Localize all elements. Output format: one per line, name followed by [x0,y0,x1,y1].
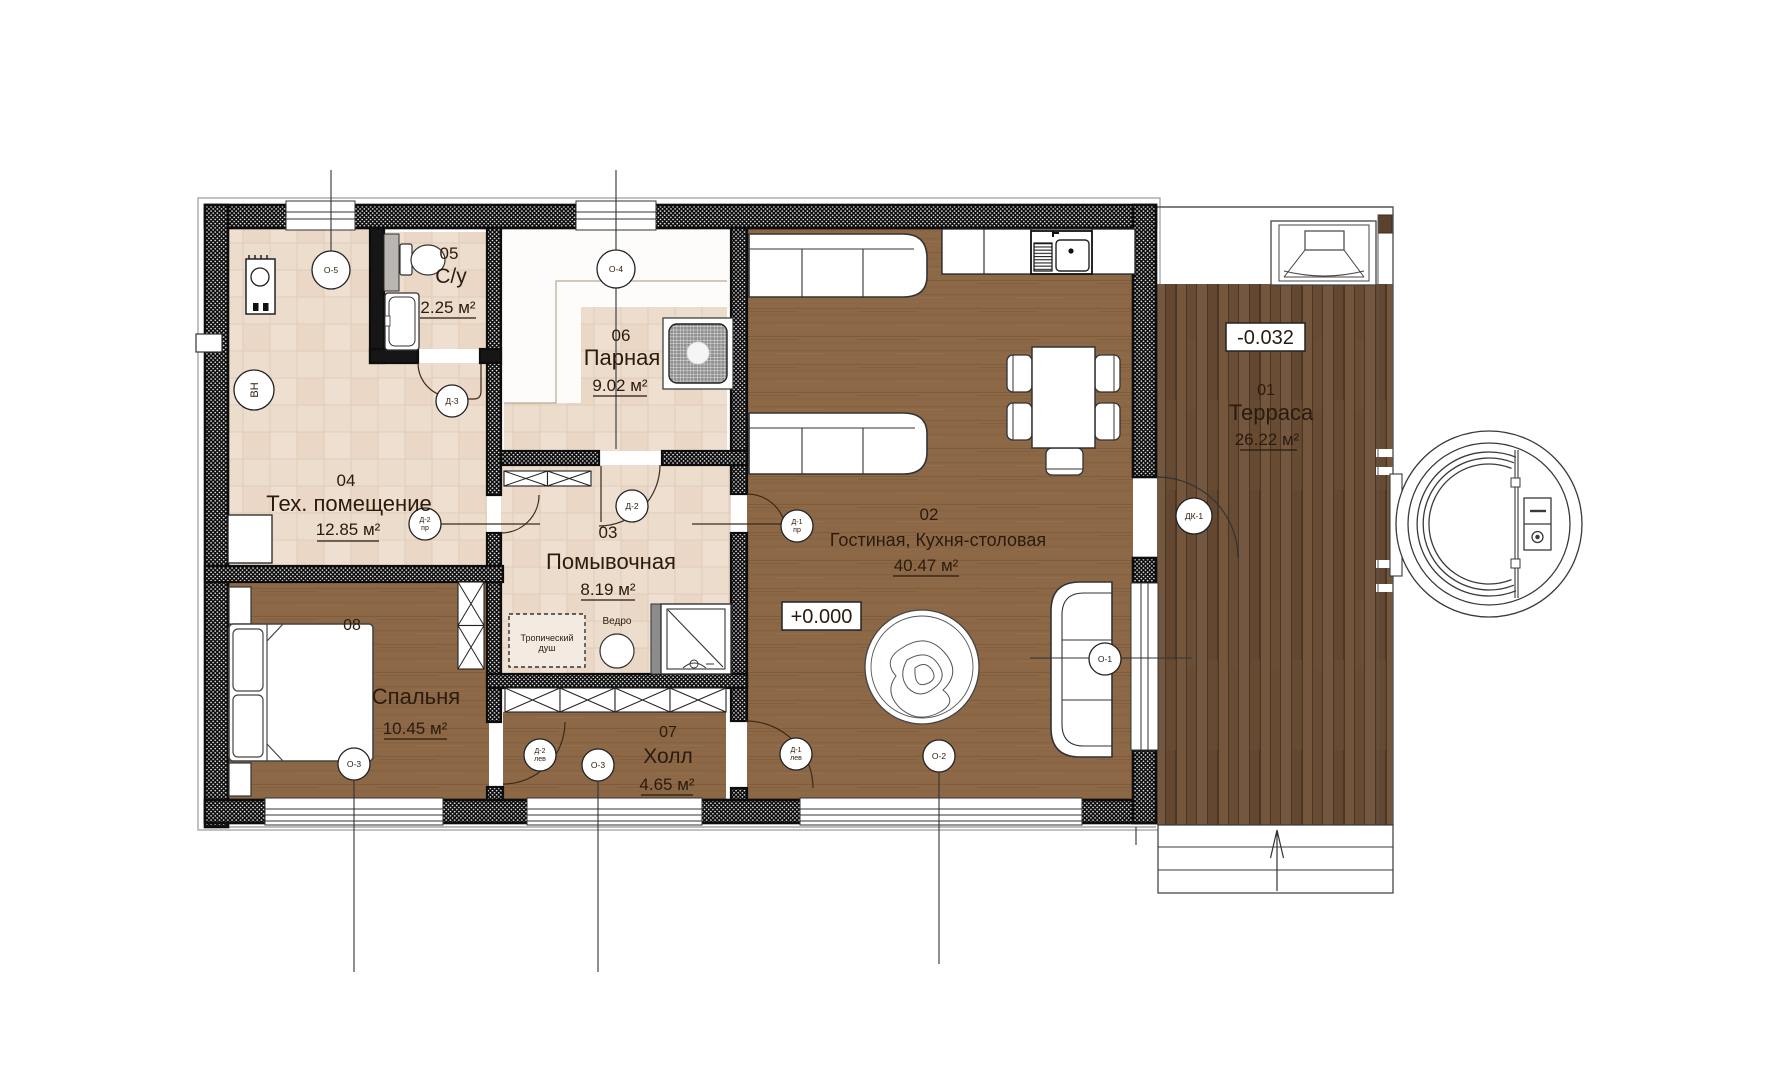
svg-text:Д-2: Д-2 [535,748,546,755]
svg-text:+0.000: +0.000 [791,606,853,628]
svg-text:06: 06 [612,326,631,345]
svg-text:О-3: О-3 [591,760,605,770]
svg-text:Терраса: Терраса [1229,400,1314,425]
svg-text:02: 02 [920,505,939,524]
svg-text:01: 01 [1257,382,1275,399]
svg-text:Д-1: Д-1 [791,747,802,754]
svg-text:04: 04 [337,471,356,490]
svg-text:8.19 м²: 8.19 м² [580,580,635,599]
svg-text:10.45 м²: 10.45 м² [383,719,448,738]
svg-text:2.25 м²: 2.25 м² [420,298,475,317]
svg-text:9.02 м²: 9.02 м² [592,376,647,395]
svg-text:О-1: О-1 [1098,654,1112,664]
svg-text:душ: душ [539,643,556,653]
svg-text:12.85 м²: 12.85 м² [316,520,381,539]
svg-text:Д-2: Д-2 [420,517,431,524]
svg-text:КТП: КТП [204,423,213,437]
svg-text:Тропический: Тропический [520,633,573,643]
svg-text:О-5: О-5 [324,265,338,275]
svg-text:26.22 м²: 26.22 м² [1235,430,1300,449]
svg-text:пр: пр [421,525,429,532]
svg-text:4.65 м²: 4.65 м² [639,775,694,794]
svg-text:03: 03 [599,523,618,542]
svg-text:О-4: О-4 [609,264,623,274]
svg-text:08: 08 [343,617,361,634]
svg-text:Спальня: Спальня [372,684,460,709]
svg-text:С/у: С/у [435,265,467,288]
svg-text:Парная: Парная [584,345,661,370]
svg-text:07: 07 [659,724,677,741]
svg-text:лев: лев [534,756,546,763]
svg-text:Помывочная: Помывочная [546,549,676,574]
svg-text:05: 05 [440,244,459,263]
svg-text:Д-2: Д-2 [625,501,639,511]
svg-text:40.47 м²: 40.47 м² [894,556,959,575]
svg-text:О-3: О-3 [347,759,361,769]
svg-text:лев: лев [790,755,802,762]
svg-text:ДК-1: ДК-1 [1185,511,1204,521]
svg-text:ВН: ВН [249,382,261,397]
svg-text:-0.032: -0.032 [1237,327,1294,349]
svg-text:О-2: О-2 [932,751,946,761]
svg-text:пр: пр [793,527,801,534]
svg-text:Д-3: Д-3 [445,396,459,406]
svg-text:Тех. помещение: Тех. помещение [266,491,431,516]
svg-text:Ведро: Ведро [603,616,632,627]
svg-text:Холл: Холл [643,745,693,768]
svg-text:Гостиная, Кухня-столовая: Гостиная, Кухня-столовая [830,530,1046,550]
svg-text:Д-1: Д-1 [792,519,803,526]
